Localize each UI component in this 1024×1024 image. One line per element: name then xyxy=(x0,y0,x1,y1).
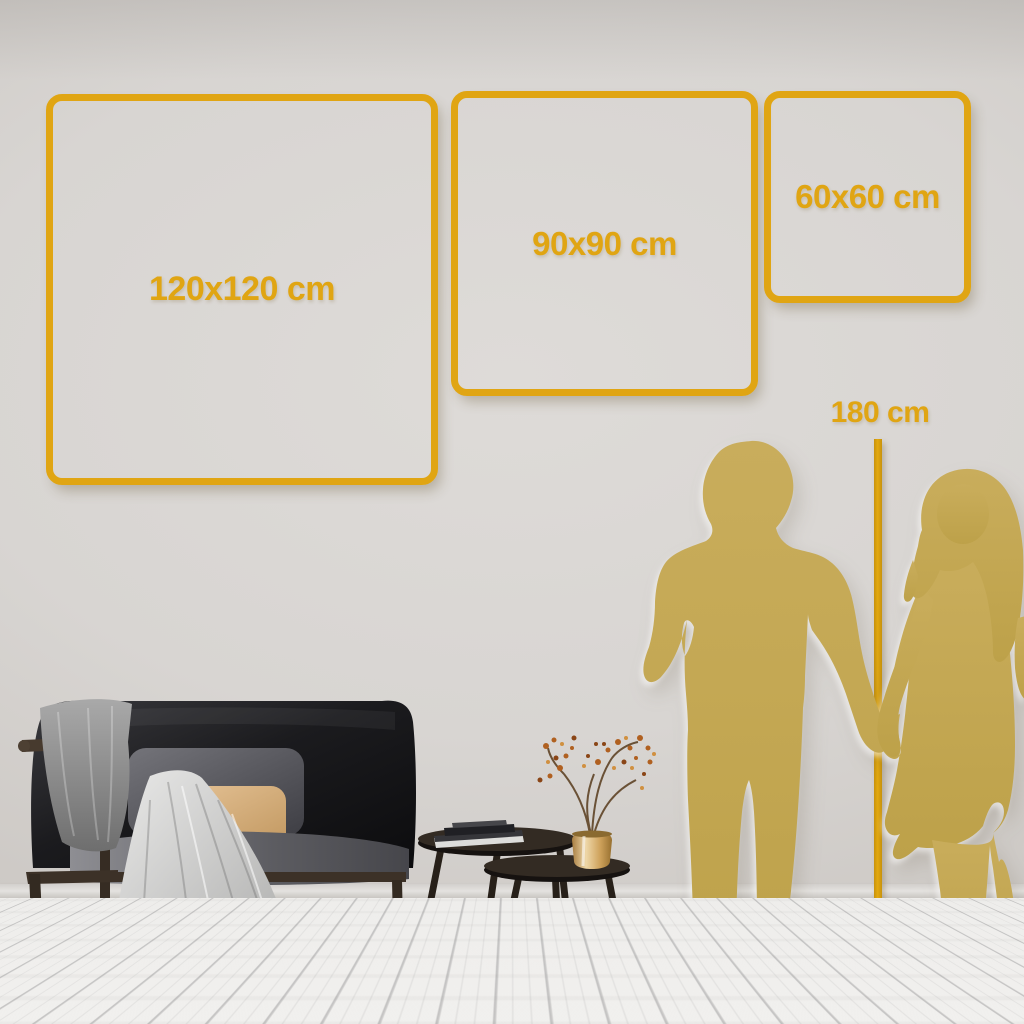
size-label-120: 120x120 cm xyxy=(149,270,335,309)
height-reference-label: 180 cm xyxy=(795,396,965,430)
floor xyxy=(0,898,1024,1024)
height-reference-line xyxy=(874,439,882,982)
size-frame-90: 90x90 cm xyxy=(451,91,758,396)
size-guide-scene: 120x120 cm 90x90 cm 60x60 cm xyxy=(0,0,1024,1024)
size-frame-60: 60x60 cm xyxy=(764,91,971,303)
size-label-90: 90x90 cm xyxy=(532,225,677,263)
baseboard xyxy=(0,884,1024,898)
size-label-60: 60x60 cm xyxy=(795,178,940,216)
wall-floor-shadow xyxy=(0,898,1024,914)
size-frame-120: 120x120 cm xyxy=(46,94,438,485)
